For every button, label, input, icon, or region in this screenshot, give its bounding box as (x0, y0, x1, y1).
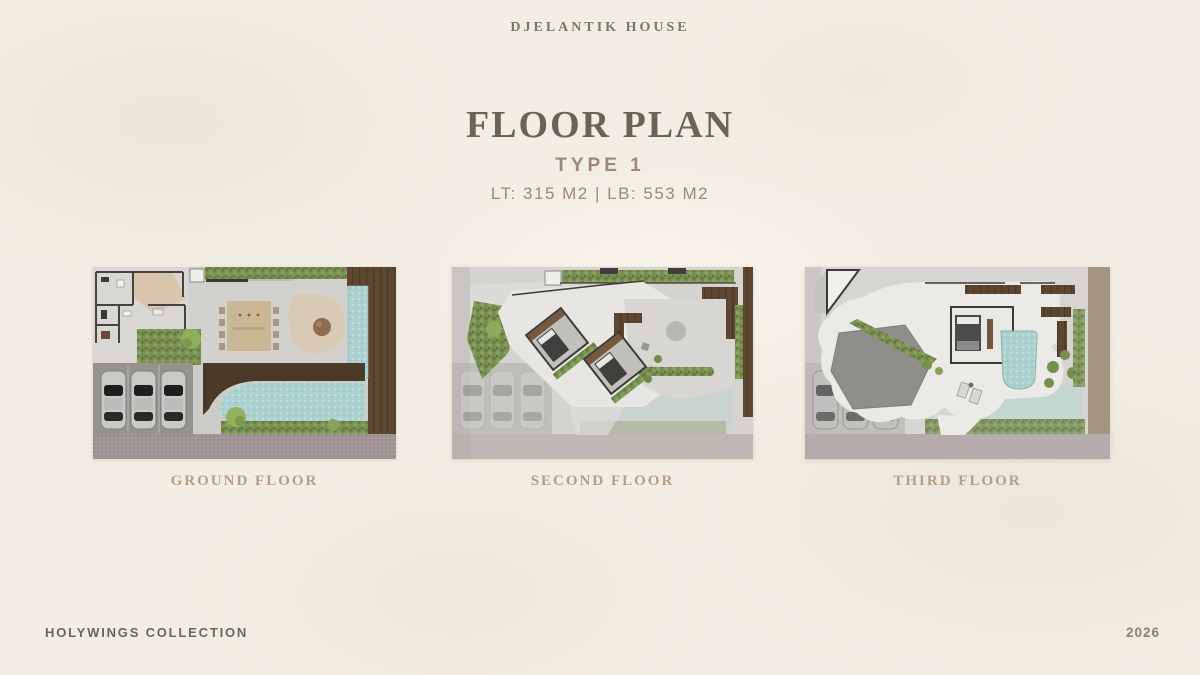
type-subtitle: TYPE 1 (0, 155, 1200, 177)
title-block: FLOOR PLAN TYPE 1 LT: 315 M2 | LB: 553 M… (0, 106, 1200, 204)
floor-label-ground: GROUND FLOOR (73, 473, 416, 490)
second-floor-figure: SECOND FLOOR (452, 267, 753, 459)
page-title: FLOOR PLAN (0, 106, 1200, 146)
floor-plan-slide: { "page": { "brand": "DJELANTIK HOUSE", … (0, 0, 1200, 675)
plunge-pool (1001, 331, 1037, 389)
year-label: 2026 (1126, 625, 1160, 640)
dining-set (219, 301, 279, 351)
third-floor-figure: THIRD FLOOR (805, 267, 1110, 459)
brand-title: DJELANTIK HOUSE (0, 20, 1200, 36)
car-icon (131, 371, 156, 429)
paver-strip (93, 434, 396, 459)
ground-floor-figure: GROUND FLOOR (93, 267, 396, 459)
ground-floor-plan-image (93, 267, 396, 459)
hedge-top (562, 270, 734, 283)
wood-deck-right (368, 267, 396, 437)
collection-name: HOLYWINGS COLLECTION (45, 625, 248, 640)
floor-label-third: THIRD FLOOR (785, 473, 1130, 490)
lounge-rug (289, 294, 345, 353)
car-icon (101, 371, 126, 429)
floor-label-second: SECOND FLOOR (432, 473, 773, 490)
car-icon (161, 371, 186, 429)
second-floor-plan-image (452, 267, 753, 459)
third-floor-plan-image (805, 267, 1110, 459)
hedge-top (205, 267, 347, 279)
area-info: LT: 315 M2 | LB: 553 M2 (0, 184, 1200, 204)
